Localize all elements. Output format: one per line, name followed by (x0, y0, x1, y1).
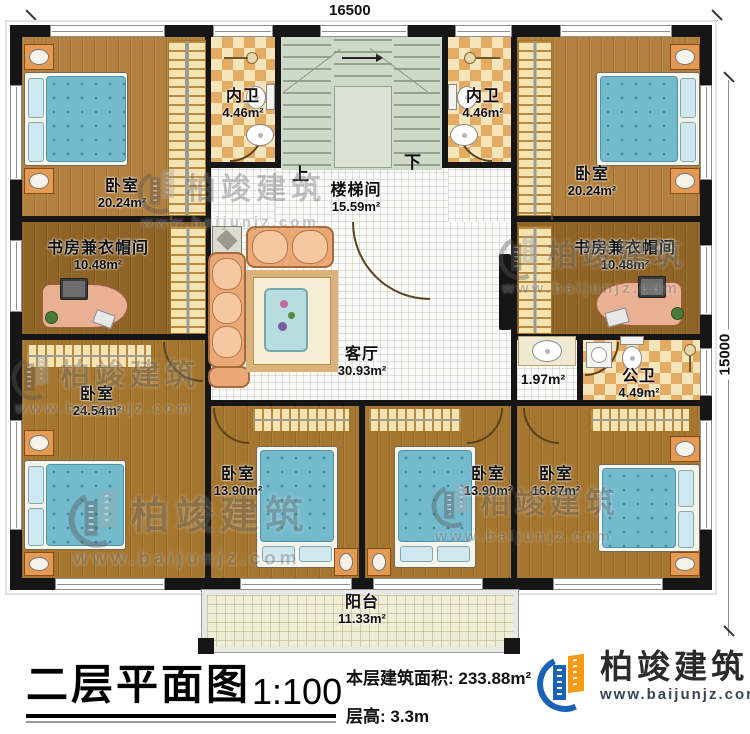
room-label-bedroom-br: 卧室 16.87m² (518, 466, 594, 498)
sofa-cushion (292, 230, 328, 264)
toilet-tank (620, 336, 644, 345)
room-area: 13.90m² (200, 484, 276, 499)
dimension-tick (723, 71, 734, 82)
room-label-balcony: 阳台 11.33m² (302, 594, 422, 626)
room-area: 30.93m² (300, 364, 424, 379)
nightstand (670, 552, 700, 576)
bed-mattress (602, 468, 676, 548)
shower-cord (689, 356, 691, 372)
nightstand (670, 436, 700, 462)
stair-flight-top (334, 39, 392, 84)
wall (22, 334, 211, 340)
wardrobe (368, 408, 462, 432)
room-label-bath-tl: 内卫 4.46m² (208, 88, 278, 120)
stair-down-label: 下 (404, 148, 421, 173)
title-underline-thin (26, 721, 336, 723)
room-area: 10.48m² (22, 258, 174, 273)
balcony-corner-post (504, 638, 520, 654)
room-area: 20.24m² (62, 196, 182, 211)
dimension-tick (723, 625, 734, 636)
sofa-cushion (212, 292, 242, 324)
flower-decor (278, 322, 287, 331)
nightstand (24, 552, 54, 576)
room-area: 10.48m² (540, 258, 710, 273)
pillow (678, 470, 694, 507)
brand-text: 柏竣建筑 www.baijunjz.com (600, 650, 750, 703)
balcony-sliding-door (240, 578, 352, 590)
wall (205, 162, 281, 168)
nightstand (24, 168, 54, 194)
pillow (437, 546, 470, 562)
nightstand (334, 548, 358, 576)
window (700, 85, 712, 180)
coffee-table (264, 288, 308, 352)
room-label-bedroom-m1: 卧室 13.90m² (200, 466, 276, 498)
brand-url: www.baijunjz.com (600, 686, 750, 703)
shower-icon (464, 52, 476, 64)
sofa-cushion (212, 326, 242, 358)
window (10, 240, 22, 312)
room-label-bath-tr: 内卫 4.46m² (448, 88, 518, 120)
wall (517, 400, 700, 406)
window (10, 85, 22, 180)
wardrobe (252, 408, 350, 432)
dimension-top-value: 16500 (325, 2, 375, 19)
pillow (299, 546, 332, 562)
room-area: 20.24m² (532, 184, 652, 199)
desk-monitor (60, 278, 88, 300)
room-name: 客厅 (300, 346, 424, 364)
pillow (262, 546, 295, 562)
wall (359, 406, 365, 578)
room-label-stairwell: 楼梯间 15.59m² (300, 182, 412, 214)
brand-logo-icon (540, 648, 594, 704)
title-underline (26, 714, 336, 718)
sofa-armrest (208, 366, 250, 388)
stair-direction-arrow (342, 57, 376, 59)
room-area: 1.97m² (505, 372, 581, 388)
brand-block: 柏竣建筑 www.baijunjz.com (540, 648, 750, 704)
room-label-study-left: 书房兼衣帽间 10.48m² (22, 240, 174, 272)
brand-name: 柏竣建筑 (600, 650, 750, 683)
pillow (680, 78, 696, 118)
plan-scale: 1:100 (252, 674, 342, 710)
room-label-bedroom-tl: 卧室 20.24m² (62, 178, 182, 210)
room-name: 卧室 (532, 166, 652, 184)
window (455, 25, 512, 37)
balcony-sliding-door (373, 578, 483, 590)
dimension-line-top (30, 20, 718, 21)
bed-mattress (46, 76, 126, 162)
room-label-bedroom-bl: 卧室 24.54m² (37, 386, 157, 418)
stair-landing (334, 86, 392, 168)
wardrobe (170, 226, 206, 334)
dimension-tick (711, 9, 722, 20)
room-area: 13.90m² (450, 484, 526, 499)
room-label-bedroom-tr: 卧室 20.24m² (532, 166, 652, 198)
sink-icon (450, 124, 478, 146)
pillow (680, 122, 696, 162)
pillow (28, 78, 44, 118)
window (213, 25, 273, 37)
room-area: 4.46m² (208, 106, 278, 121)
flower-decor (280, 300, 288, 308)
pillow (400, 546, 433, 562)
room-name: 卧室 (200, 466, 276, 484)
pillow (28, 466, 44, 504)
plan-title: 二层平面图 (26, 664, 251, 706)
room-label-hallway: 1.97m² (505, 372, 581, 388)
wardrobe (26, 344, 152, 368)
shower-icon (684, 344, 696, 356)
room-name: 书房兼衣帽间 (540, 240, 710, 258)
room-name: 阳台 (302, 594, 422, 612)
plant-icon (672, 308, 683, 319)
desk-monitor (638, 276, 666, 298)
flower-decor (288, 312, 295, 319)
bed-mattress (46, 464, 124, 546)
window (553, 578, 663, 590)
room-label-bedroom-m2: 卧室 13.90m² (450, 466, 526, 498)
floor-plan-image: 16500 15000 (0, 0, 750, 734)
window (50, 25, 165, 37)
wardrobe (590, 408, 690, 432)
shower-arm (476, 57, 500, 59)
room-name: 卧室 (450, 466, 526, 484)
dimension-tick (25, 9, 36, 20)
room-name: 卧室 (518, 466, 594, 484)
room-label-living: 客厅 30.93m² (300, 346, 424, 378)
plant-icon (46, 312, 57, 323)
room-area: 4.49m² (600, 386, 678, 401)
window (55, 578, 165, 590)
sink-icon (532, 340, 562, 362)
hall-floor-left (211, 162, 275, 222)
room-name: 公卫 (600, 368, 678, 386)
window (320, 25, 408, 37)
room-name: 书房兼衣帽间 (22, 240, 174, 258)
hall-floor-right (448, 162, 511, 222)
sink-icon (246, 124, 274, 146)
window (700, 420, 712, 530)
floor-height-text: 层高: 3.3m (346, 702, 429, 727)
bed-mattress (600, 76, 678, 162)
pillow (28, 122, 44, 162)
floor-area-text: 本层建筑面积: 233.88m² (346, 664, 531, 689)
room-area: 11.33m² (302, 612, 422, 627)
room-name: 楼梯间 (300, 182, 412, 200)
room-area: 16.87m² (518, 484, 594, 499)
room-area: 24.54m² (37, 404, 157, 419)
dimension-right-value: 15000 (716, 330, 733, 380)
corner-table (212, 226, 242, 254)
nightstand (24, 430, 54, 456)
nightstand (367, 548, 391, 576)
room-area: 4.46m² (448, 106, 518, 121)
nightstand (670, 168, 700, 194)
room-name: 内卫 (208, 88, 278, 106)
window (700, 348, 712, 396)
shower-arm (224, 57, 248, 59)
washing-machine-icon (586, 342, 612, 368)
sofa-cushion (252, 230, 288, 264)
nightstand (24, 44, 54, 70)
room-label-bath-public: 公卫 4.49m² (600, 368, 678, 400)
window (560, 25, 672, 37)
toilet-icon (622, 346, 642, 370)
tv (499, 254, 511, 330)
window (10, 420, 22, 530)
wall (442, 162, 517, 168)
room-area: 15.59m² (300, 200, 412, 215)
pillow (28, 508, 44, 546)
room-name: 内卫 (448, 88, 518, 106)
stair-flight-left (283, 44, 331, 168)
room-label-study-right: 书房兼衣帽间 10.48m² (540, 240, 710, 272)
room-name: 卧室 (37, 386, 157, 404)
pillow (678, 511, 694, 548)
balcony-corner-post (198, 638, 214, 654)
room-name: 卧室 (62, 178, 182, 196)
nightstand (670, 44, 700, 70)
sofa-cushion (212, 258, 242, 290)
